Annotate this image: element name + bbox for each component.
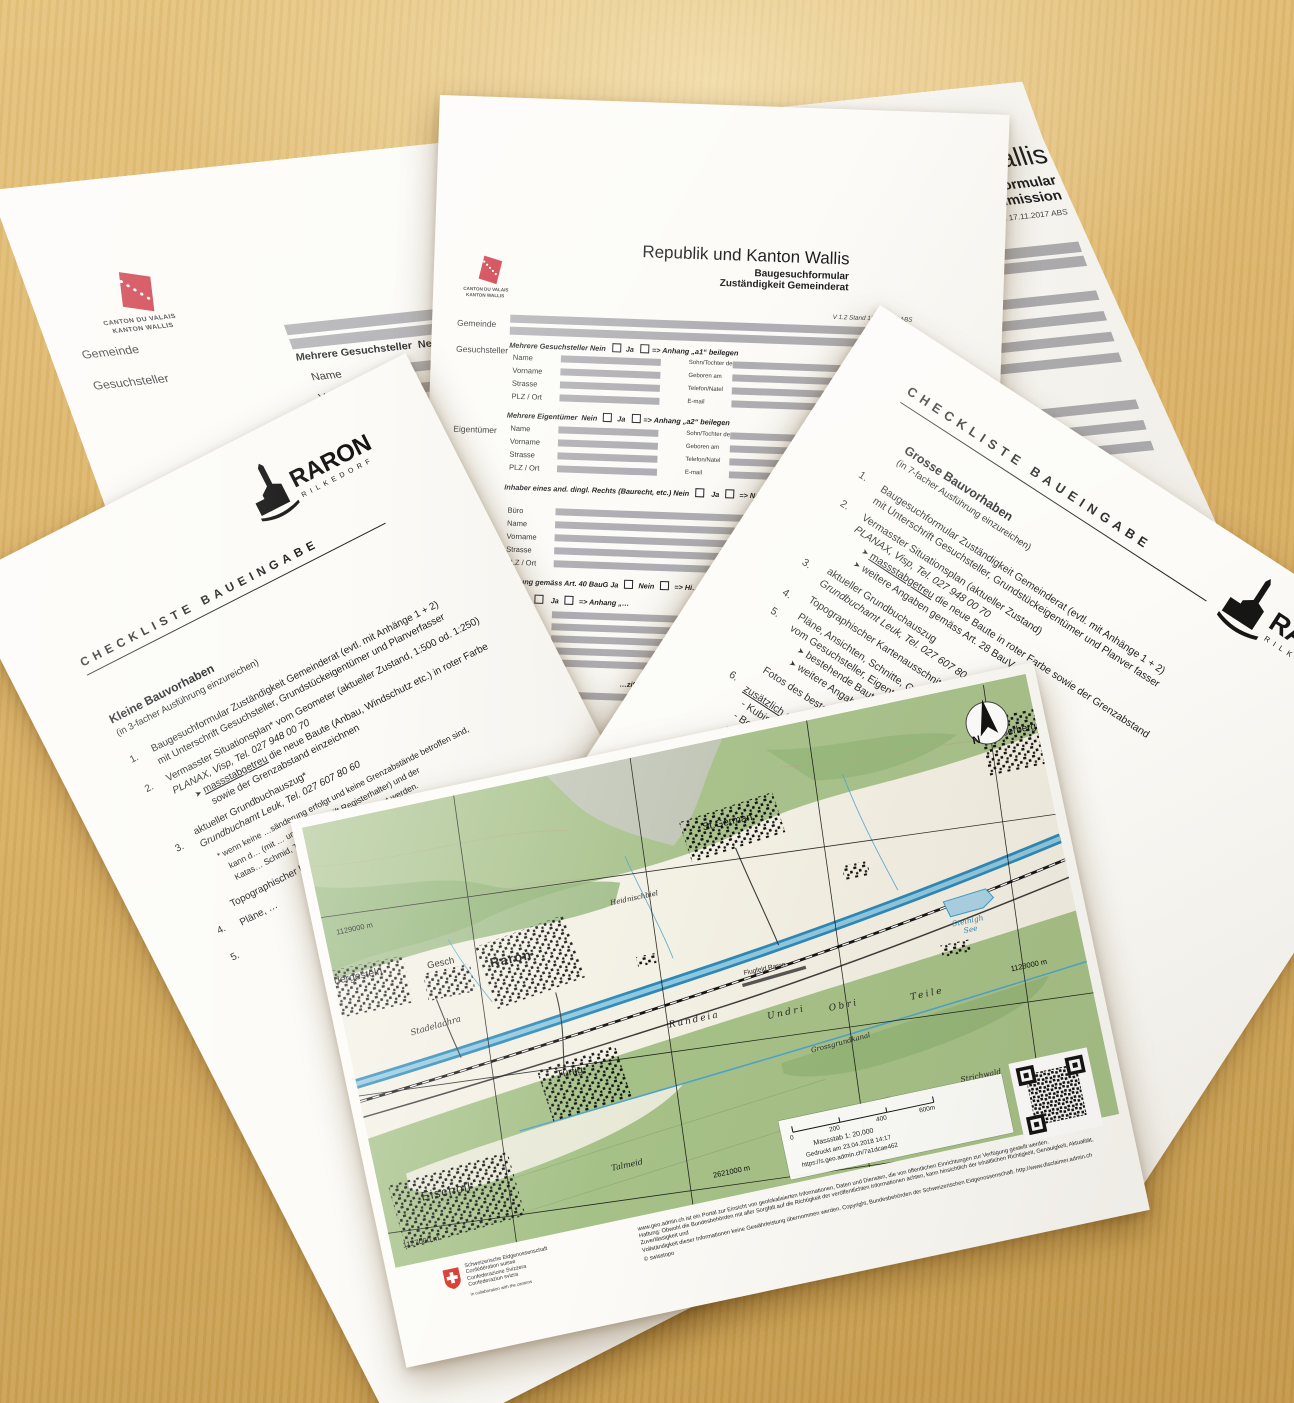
form-b-field-label: Vorname [512,366,542,376]
qr-code [1008,1047,1103,1142]
item-number: 3. [173,840,187,856]
form-a-field-label: Name [310,369,344,383]
form-b-label-gemeinde: Gemeinde [457,318,497,329]
form-b-field-label: PLZ / Ort [511,392,542,402]
checkbox-icon [565,596,574,605]
form-b-field-label: E-mail [685,470,702,477]
item-number: 1. [128,751,142,767]
form-b-label-gesuchsteller: Gesuchsteller [456,344,508,356]
checkbox-icon [603,413,612,422]
desk-photo: CANTON DU VALAIS KANTON WALLIS Republik … [0,0,1294,1403]
item-number: 1. [856,468,871,485]
form-b-row-inhaber: Inhaber eines and. dingl. Rechts (Baurec… [504,481,791,501]
item-number: 4. [780,586,795,603]
form-a-label-gemeinde: Gemeinde [80,342,142,361]
checkbox-icon [725,489,734,498]
checkbox-icon [640,344,649,353]
form-b-field-label: Strasse [506,545,532,555]
item-number: 4. [215,922,229,938]
checkliste-kleine-title: CHECKLISTE BAUEINGABE [78,536,322,669]
item-number: 5. [768,604,783,621]
checkbox-icon [535,595,544,604]
form-b-field-label: Name [513,353,533,363]
form-b-field-label: Telefon/Natel [688,386,723,393]
form-a-label-gesuchsteller: Gesuchsteller [91,372,171,393]
canton-valais-logo-icon: CANTON DU VALAIS KANTON WALLIS [79,261,230,352]
checkbox-icon [695,488,704,497]
form-b-field-label: Vorname [510,437,540,447]
item-number: 3. [799,556,814,573]
checkbox-icon [631,414,640,423]
swiss-coat-of-arms-icon [442,1267,463,1291]
scale-tick-400: 400 [875,1114,887,1123]
checkbox-icon [612,343,621,352]
form-b-field-label: Büro [507,506,523,516]
form-b-field-label: Telefon/Natel [685,457,720,464]
item-number: 2. [143,781,157,797]
form-b-field-label: Sohn/Tochter des [686,431,733,439]
form-b-field-label: Geboren am [686,444,720,451]
item-number: 5. [228,949,242,965]
form-b-field-label: Name [510,424,530,434]
form-b-field-label: Strasse [509,450,535,460]
form-b-field-label: E-mail [687,399,704,406]
scale-tick-0: 0 [789,1134,794,1142]
form-b-field-label: Name [507,519,527,529]
scale-tick-200: 200 [829,1124,841,1133]
form-b-label-eigentuemer: Eigentümer [453,424,497,436]
checkbox-icon [624,580,633,589]
form-b-field-label: Vorname [506,532,536,542]
item-number: 6. [726,668,741,685]
form-b-field-label: PLZ / Ort [509,463,540,473]
form-b-field-label: Geboren am [688,373,722,380]
form-b-field-label: Sohn/Tochter des [689,360,736,368]
form-b-row-mehrere-gesuchsteller: Mehrere Gesuchsteller Nein Ja=> Anhang „… [509,340,738,358]
form-b-field-label: Strasse [512,379,538,389]
checkbox-icon [660,581,669,590]
item-number: 2. [837,497,852,514]
form-b-row-art40: …gung gemäss Art. 40 BauG Ja Nein => Hi… [508,576,700,593]
form-b-row-mehrere-eigentuemer: Mehrere Eigentümer Nein Ja=> Anhang „a2“… [507,410,730,428]
